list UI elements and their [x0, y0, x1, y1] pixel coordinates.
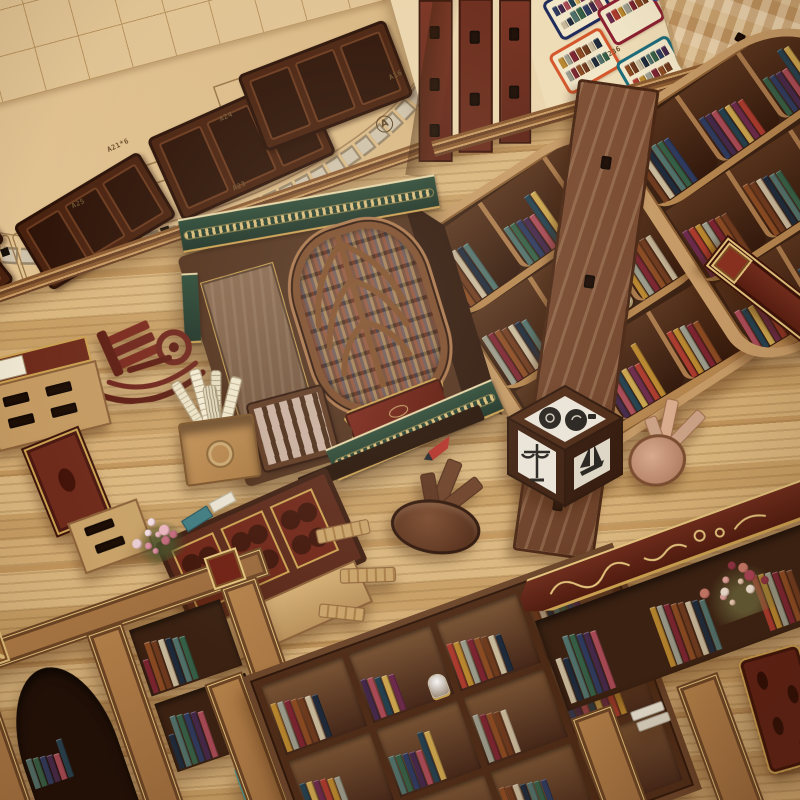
- flower-petal: [151, 547, 159, 555]
- flower-petal: [745, 583, 757, 595]
- flower-petal: [131, 537, 144, 550]
- flower-petal: [729, 599, 737, 607]
- mini-books: [355, 645, 433, 721]
- flower-petal: [144, 528, 153, 537]
- round-side-table-flipped: [381, 442, 495, 565]
- abacus-clock-cube: [502, 382, 628, 508]
- flower-petal: [721, 575, 730, 584]
- desk-leg: [340, 567, 396, 584]
- stool-flipped: [613, 389, 718, 495]
- mini-books: [496, 756, 593, 800]
- mini-white-bench: [629, 699, 670, 735]
- flower-petal: [698, 587, 711, 600]
- mini-books: [409, 792, 493, 800]
- mini-books: [47, 792, 147, 800]
- box-ring-ornament: [204, 438, 236, 470]
- flower-petal: [146, 517, 157, 528]
- mini-books: [295, 744, 392, 800]
- flower-petal: [759, 575, 769, 585]
- mini-books: [547, 604, 660, 704]
- flower-petal: [737, 578, 745, 586]
- printed-book-spines: [604, 0, 649, 24]
- table-round-top: [387, 494, 484, 560]
- mini-books: [21, 718, 120, 789]
- scroll-box-body: [178, 413, 262, 487]
- flower-petal: [727, 560, 737, 570]
- photo-miniature-kit-scene: A21*6 A23 A24 A25 A16 A22 A 237: [0, 0, 800, 800]
- scroll-holder-box: [175, 391, 264, 485]
